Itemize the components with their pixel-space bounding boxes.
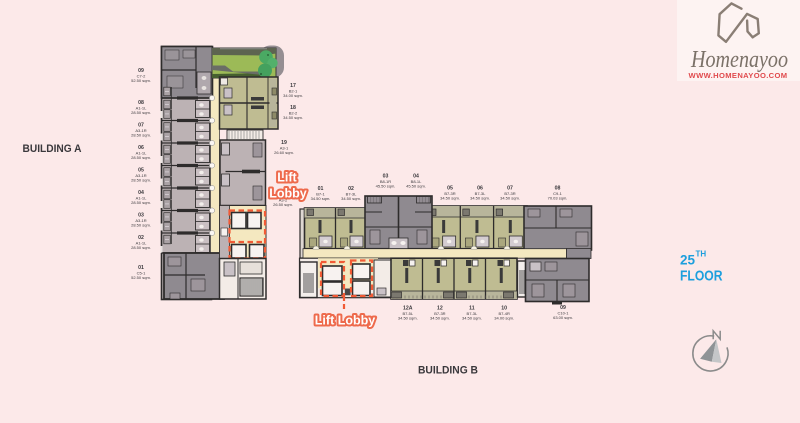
svg-text:BUILDING B: BUILDING B <box>418 365 478 377</box>
svg-text:28.50 sqm.: 28.50 sqm. <box>131 200 151 205</box>
svg-text:34.50 sqm.: 34.50 sqm. <box>398 316 418 321</box>
svg-text:TH: TH <box>696 250 707 259</box>
svg-text:34.50 sqm.: 34.50 sqm. <box>470 196 490 201</box>
svg-text:34.50 sqm.: 34.50 sqm. <box>500 196 520 201</box>
svg-text:26.60 sqm.: 26.60 sqm. <box>274 150 294 155</box>
svg-text:34.00 sqm.: 34.00 sqm. <box>494 316 514 321</box>
svg-text:26.50 sqm.: 26.50 sqm. <box>273 202 293 207</box>
svg-text:52.50 sqm.: 52.50 sqm. <box>131 275 151 280</box>
svg-text:Homenayoo: Homenayoo <box>690 47 788 73</box>
svg-text:28.50 sqm.: 28.50 sqm. <box>131 110 151 115</box>
svg-text:34.50 sqm.: 34.50 sqm. <box>440 196 460 201</box>
svg-text:34.00 sqm.: 34.00 sqm. <box>283 93 303 98</box>
svg-text:28.50 sqm.: 28.50 sqm. <box>131 133 151 138</box>
svg-text:FLOOR: FLOOR <box>680 268 723 285</box>
svg-text:52.50 sqm.: 52.50 sqm. <box>131 78 151 83</box>
svg-text:28.50 sqm.: 28.50 sqm. <box>131 155 151 160</box>
svg-text:Lobby: Lobby <box>269 187 307 201</box>
svg-text:25: 25 <box>680 253 696 268</box>
svg-text:34.50 sqm.: 34.50 sqm. <box>311 196 331 201</box>
svg-text:Lift Lobby: Lift Lobby <box>315 314 375 328</box>
svg-text:34.50 sqm.: 34.50 sqm. <box>430 316 450 321</box>
svg-text:34.50 sqm.: 34.50 sqm. <box>283 115 303 120</box>
svg-text:BUILDING A: BUILDING A <box>23 143 82 155</box>
svg-text:34.50 sqm.: 34.50 sqm. <box>462 316 482 321</box>
svg-text:28.50 sqm.: 28.50 sqm. <box>131 178 151 183</box>
svg-text:28.50 sqm.: 28.50 sqm. <box>131 223 151 228</box>
svg-text:34.50 sqm.: 34.50 sqm. <box>341 196 361 201</box>
svg-text:WWW.HOMENAYOO.COM: WWW.HOMENAYOO.COM <box>689 71 788 80</box>
svg-text:Lift: Lift <box>277 171 297 185</box>
svg-text:45.50 sqm.: 45.50 sqm. <box>406 184 426 189</box>
svg-text:45.50 sqm.: 45.50 sqm. <box>376 184 396 189</box>
svg-text:28.50 sqm.: 28.50 sqm. <box>131 245 151 250</box>
svg-text:63.00 sqm.: 63.00 sqm. <box>553 315 573 320</box>
svg-text:70.03 sqm.: 70.03 sqm. <box>548 196 568 201</box>
